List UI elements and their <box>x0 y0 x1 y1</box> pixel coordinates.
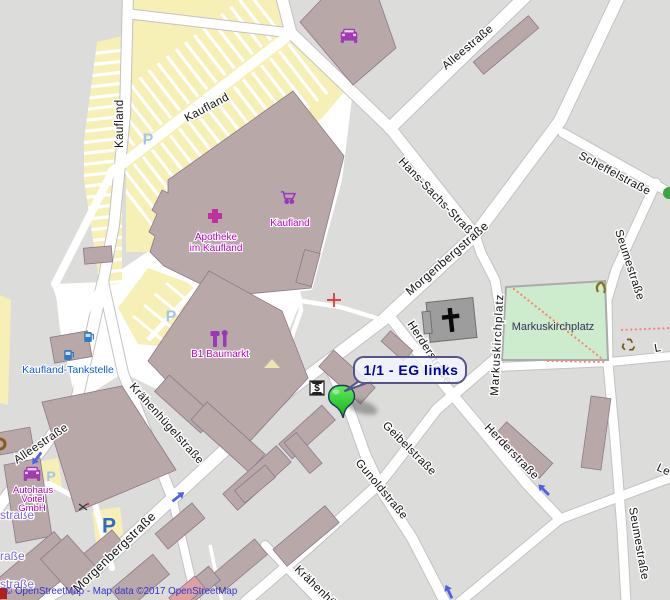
svg-text:B1 Baumarkt: B1 Baumarkt <box>191 349 249 360</box>
svg-text:im Kaufland: im Kaufland <box>190 243 243 254</box>
svg-text:Markuskirchplatz: Markuskirchplatz <box>512 321 595 333</box>
svg-text:1/1 - EG links: 1/1 - EG links <box>364 362 459 378</box>
svg-text:P: P <box>46 468 55 484</box>
svg-text:raße: raße <box>0 549 25 563</box>
svg-text:Apotheke: Apotheke <box>195 232 238 243</box>
svg-text:$: $ <box>314 383 320 394</box>
svg-text:Kaufland-Tankstelle: Kaufland-Tankstelle <box>22 364 114 376</box>
svg-text:P: P <box>143 132 154 149</box>
svg-text:P: P <box>166 309 177 326</box>
svg-text:Kaufland: Kaufland <box>114 99 126 148</box>
svg-text:© OpenStreetMap - Map data ©20: © OpenStreetMap - Map data ©2017 OpenStr… <box>5 586 238 597</box>
svg-text:GmbH: GmbH <box>18 503 46 514</box>
svg-text:Kaufland: Kaufland <box>270 218 309 229</box>
svg-text:P: P <box>102 515 116 538</box>
